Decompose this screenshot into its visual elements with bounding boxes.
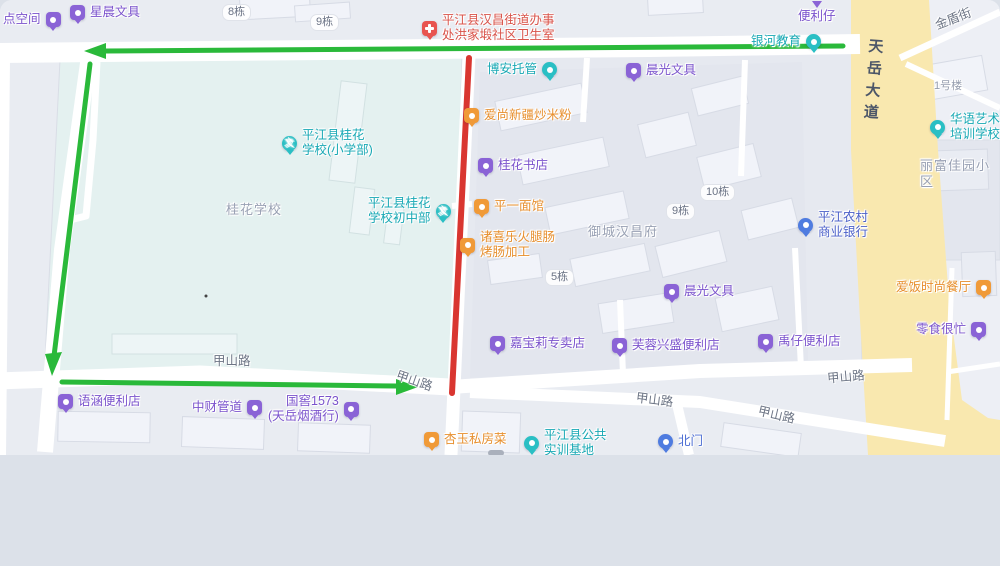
poi-guihua-shudian: 桂花书店	[478, 158, 548, 173]
store-pin-icon	[612, 338, 627, 353]
store-pin-icon	[758, 334, 773, 349]
poi-guihua-junior-school: 平江县桂花 学校初中部 文	[368, 196, 451, 227]
education-pin-icon	[542, 62, 557, 77]
poi-boan-tuoguan: 博安托管	[487, 62, 557, 77]
poi-beimen: 北门	[658, 434, 703, 449]
restaurant-pin-icon	[460, 238, 475, 253]
poi-zhongcai-guandao: 中财管道	[192, 400, 262, 415]
bank-pin-icon	[798, 218, 813, 233]
store-pin-icon	[478, 158, 493, 173]
building-label-1h: 1号楼	[934, 80, 962, 93]
poi-furong-xingsheng: 芙蓉兴盛便利店	[612, 338, 720, 353]
poi-aishang-mifen: 爱尚新疆炒米粉	[464, 108, 572, 123]
building-label-9b: 9栋	[666, 203, 695, 220]
education-pin-icon	[806, 34, 821, 49]
store-pin-icon	[46, 12, 61, 27]
poi-xingchen-wenju: 星晨文具	[70, 5, 140, 20]
building-label-9a: 9栋	[310, 14, 339, 31]
legend: 施工范围 导行路线	[0, 455, 1000, 566]
poi-lingshi-henmang: 零食很忙	[916, 322, 986, 337]
poi-huayu-yishu: 华语艺术 培训学校	[930, 112, 1000, 143]
hospital-cross-icon	[422, 21, 437, 36]
poi-jiabaoli: 嘉宝莉专卖店	[490, 336, 585, 351]
road-label-jiashan-1: 甲山路	[213, 350, 251, 369]
area-label-guihua-school: 桂花学校	[226, 202, 282, 218]
building-label-5: 5栋	[545, 269, 574, 286]
store-pin-icon	[344, 402, 359, 417]
gate-pin-icon	[658, 434, 673, 449]
education-pin-icon	[930, 120, 945, 135]
road-label-jiashan-3: 甲山路	[826, 364, 865, 386]
collapsed-pin-icon	[812, 1, 822, 8]
poi-xingyu-sifangcai: 杏玉私房菜	[424, 432, 507, 447]
poi-community-clinic: 平江县汉昌街道办事 处洪家塅社区卫生室	[422, 13, 555, 44]
poi-yinhe-jiaoyu: 银河教育	[751, 34, 821, 49]
school-icon: 文	[436, 204, 451, 219]
poi-rural-bank: 平江农村 商业银行	[798, 210, 868, 241]
construction-notice-image: 天岳大道 甲山路 甲山路 甲山路 甲山路 甲山路 金盾街 桂花学校 御城汉昌府 …	[0, 0, 1000, 566]
poi-bianlizai: 便利仔	[798, 1, 836, 24]
poi-aifan-canting: 爱饭时尚餐厅	[896, 280, 991, 295]
poi-zhuxile: 诸喜乐火腿肠 烤肠加工	[460, 230, 555, 261]
store-pin-icon	[58, 394, 73, 409]
store-pin-icon	[626, 63, 641, 78]
poi-chenguang-wenju-2: 晨光文具	[664, 284, 734, 299]
poi-guojiao-1573: 国窖1573 (天岳烟酒行)	[268, 394, 359, 425]
school-icon: 文	[282, 136, 297, 151]
restaurant-pin-icon	[464, 108, 479, 123]
restaurant-pin-icon	[424, 432, 439, 447]
poi-yuzai-bianlidian: 禹仔便利店	[758, 334, 841, 349]
poi-yuhan-bianlidian: 语涵便利店	[58, 394, 141, 409]
map-dot	[205, 295, 208, 298]
store-pin-icon	[247, 400, 262, 415]
store-pin-icon	[70, 5, 85, 20]
store-pin-icon	[971, 322, 986, 337]
building-label-10: 10栋	[700, 184, 735, 201]
restaurant-pin-icon	[976, 280, 991, 295]
area-label-yucheng: 御城汉昌府	[588, 224, 658, 240]
area-label-lifu: 丽富佳园小区	[920, 158, 1000, 190]
store-pin-icon	[664, 284, 679, 299]
poi-pingyi-mianguan: 平一面馆	[474, 199, 544, 214]
map-canvas: 天岳大道 甲山路 甲山路 甲山路 甲山路 甲山路 金盾街 桂花学校 御城汉昌府 …	[0, 0, 1000, 455]
poi-chenguang-wenju-top: 晨光文具	[626, 63, 696, 78]
building-label-8: 8栋	[222, 4, 251, 21]
training-base-pin-icon	[524, 436, 539, 451]
restaurant-pin-icon	[474, 199, 489, 214]
store-pin-icon	[490, 336, 505, 351]
poi-dian-kongjian: 点空间	[3, 12, 61, 27]
poi-guihua-primary-school: 文 平江县桂花 学校(小学部)	[282, 128, 373, 159]
